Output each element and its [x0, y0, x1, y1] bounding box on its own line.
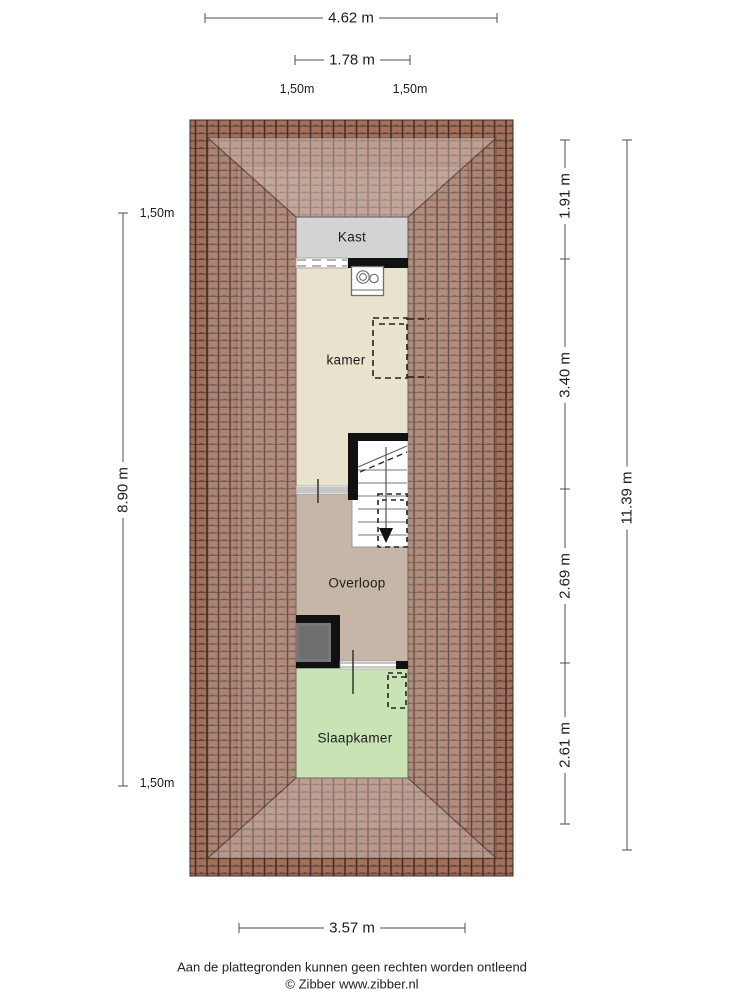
dim-left-height: 8.90 m [115, 462, 132, 518]
room-label-slaapkamer: Slaapkamer [317, 731, 392, 746]
dim-top-inner: 1.78 m [324, 52, 380, 69]
dim-right-seg-1: 1.91 m [557, 168, 574, 224]
dim-contour-top-left: 1,50m [278, 82, 317, 96]
dim-right-seg-2: 3.40 m [557, 347, 574, 403]
floorplan-graphic [0, 0, 750, 1000]
dim-contour-left-top: 1,50m [138, 206, 177, 220]
room-label-kast: Kast [338, 230, 366, 245]
stairs [348, 433, 408, 547]
washing-machine-icon [352, 267, 384, 296]
room-label-kamer: kamer [326, 353, 365, 368]
roof-plane-right [408, 138, 496, 858]
dim-right-seg-3: 2.69 m [557, 548, 574, 604]
chimney [296, 615, 340, 668]
dim-contour-top-right: 1,50m [391, 82, 430, 96]
room-label-overloop: Overloop [328, 576, 385, 591]
footer-disclaimer: Aan de plattegronden kunnen geen rechten… [177, 960, 527, 975]
room-slaapkamer [296, 668, 408, 778]
footer-copyright: © Zibber www.zibber.nl [285, 977, 418, 992]
stairs-wall-left [348, 433, 358, 500]
dim-right-seg-4: 2.61 m [557, 717, 574, 773]
roof-plane-left [208, 138, 296, 858]
floorplan-canvas: Kast kamer Overloop Slaapkamer 4.62 m 1.… [0, 0, 750, 1000]
dim-right-total: 11.39 m [619, 466, 636, 529]
dim-bottom-width: 3.57 m [324, 920, 380, 937]
dim-top-total: 4.62 m [323, 10, 379, 27]
dim-contour-left-bottom: 1,50m [138, 776, 177, 790]
